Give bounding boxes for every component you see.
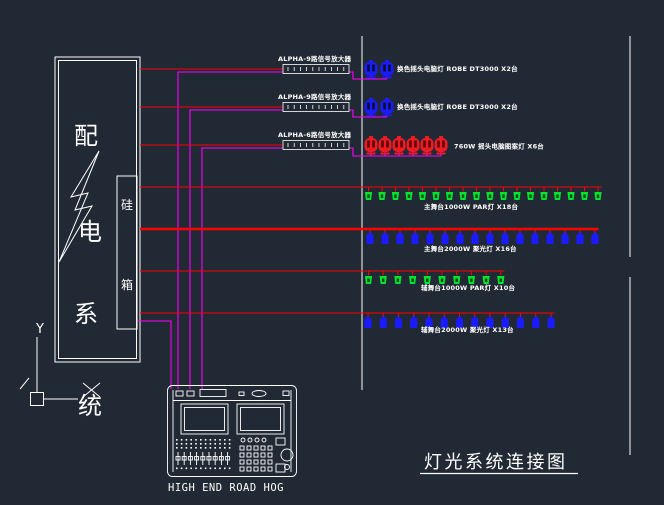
- drawing-title: 灯光系统连接图: [424, 452, 568, 473]
- signal-amplifier-box-3: [283, 141, 349, 150]
- par-can-icon: [554, 188, 561, 201]
- signal-amplifier-box-2: [283, 103, 349, 112]
- fixture-row-label-5: 主舞台2000W 聚光灯 X16台: [424, 244, 517, 253]
- lighting-console: [168, 386, 297, 477]
- spot-light-icon: [486, 230, 493, 245]
- fixture-row-label-6: 辅舞台1000W PAR灯 X10台: [421, 283, 515, 292]
- spot-light-icon: [591, 230, 598, 245]
- amplifier-label-1: ALPHA-9路信号放大器: [278, 54, 352, 63]
- spot-light-icon: [456, 230, 463, 245]
- spot-light-icon: [576, 230, 583, 245]
- amplifier-label-3: ALPHA-6路信号放大器: [278, 130, 352, 139]
- fixture-row-5: [140, 229, 599, 244]
- dmx-signal-wires: [138, 72, 441, 389]
- spot-light-icon: [561, 230, 568, 245]
- spot-light-icon: [546, 230, 553, 245]
- spot-light-icon: [411, 230, 418, 245]
- spot-light-icon: [516, 230, 523, 245]
- spot-light-icon: [441, 230, 448, 245]
- signal-amplifier-box-1: [283, 65, 349, 74]
- spot-light-icon: [380, 314, 387, 329]
- spot-light-icon: [517, 314, 524, 329]
- cabinet-char-3: 系: [74, 300, 98, 328]
- par-can-icon: [567, 188, 574, 201]
- par-can-icon: [405, 188, 412, 201]
- par-can-icon: [392, 188, 399, 201]
- par-can-icon: [432, 188, 439, 201]
- spot-light-icon: [395, 314, 402, 329]
- fixture-row-label-4: 主舞台1000W PAR灯 X18台: [424, 202, 518, 211]
- par-can-icon: [513, 188, 520, 201]
- par-can-icon: [446, 188, 453, 201]
- par-can-icon: [378, 188, 385, 201]
- spot-light-icon: [426, 230, 433, 245]
- par-can-icon: [365, 188, 372, 201]
- moving-head-icon: [365, 98, 378, 117]
- fixture-row-label-1: 换色摇头电脑灯 ROBE DT3000 X2台: [397, 64, 518, 73]
- fixture-row-6: [140, 271, 504, 284]
- par-can-icon: [394, 272, 401, 285]
- y-axis-label: Y: [35, 322, 44, 337]
- spot-light-icon: [471, 230, 478, 245]
- par-can-icon: [500, 188, 507, 201]
- console-brand-label: HIGH END ROAD HOG: [168, 482, 284, 494]
- spot-light-icon: [547, 314, 554, 329]
- spot-light-icon: [381, 230, 388, 245]
- console-screen-right: [237, 404, 284, 434]
- par-can-icon: [419, 188, 426, 201]
- fixture-rows-layer: [140, 60, 602, 328]
- par-can-icon: [409, 272, 416, 285]
- par-can-icon: [497, 272, 504, 285]
- spot-light-icon: [410, 314, 417, 329]
- moving-head-icon: [365, 60, 378, 79]
- par-can-icon: [594, 188, 601, 201]
- console-screen-left: [181, 404, 228, 434]
- fixture-row-4: [140, 187, 602, 200]
- fixture-row-label-2: 换色摇头电脑灯 ROBE DT3000 X2台: [397, 102, 518, 111]
- par-can-icon: [468, 272, 475, 285]
- moving-head-icon: [381, 60, 394, 79]
- dimmer-box-char-2: 箱: [121, 277, 133, 292]
- par-can-icon: [483, 272, 490, 285]
- par-can-icon: [486, 188, 493, 201]
- par-can-icon: [453, 272, 460, 285]
- spot-light-icon: [366, 230, 373, 245]
- moving-head-icon: [393, 136, 406, 155]
- spot-light-icon: [531, 230, 538, 245]
- console-controls: [176, 438, 285, 472]
- par-can-icon: [527, 188, 534, 201]
- moving-head-icon: [365, 136, 378, 155]
- fixture-row-label-3: 760W 摇头电脑图案灯 X6台: [454, 142, 544, 151]
- par-can-icon: [424, 272, 431, 285]
- par-can-icon: [380, 272, 387, 285]
- console-connector: [176, 391, 183, 396]
- moving-head-icon: [421, 136, 434, 155]
- spot-light-icon: [396, 230, 403, 245]
- dimmer-box-char-1: 硅: [121, 198, 133, 212]
- par-can-icon: [473, 188, 480, 201]
- moving-head-icon: [381, 98, 394, 117]
- par-can-icon: [459, 188, 466, 201]
- spot-light-icon: [532, 314, 539, 329]
- moving-head-icon: [407, 136, 420, 155]
- moving-head-icon: [435, 136, 448, 155]
- spot-light-icon: [364, 314, 371, 329]
- cabinet-char-1: 配: [74, 122, 98, 150]
- moving-head-icon: [379, 136, 392, 155]
- par-can-icon: [365, 272, 372, 285]
- par-can-icon: [540, 188, 547, 201]
- lighting-diagram: 配 电 系 统 硅 箱 Y ALPHA-9路信号放大器 ALPHA-9路信号放大…: [0, 0, 664, 505]
- cad-drawing-canvas[interactable]: 配 电 系 统 硅 箱 Y ALPHA-9路信号放大器 ALPHA-9路信号放大…: [0, 0, 664, 505]
- fixture-row-label-7: 辅舞台2000W 聚光灯 X13台: [421, 325, 514, 334]
- par-can-icon: [438, 272, 445, 285]
- amplifier-label-2: ALPHA-9路信号放大器: [278, 92, 352, 101]
- cabinet-char-2: 电: [78, 218, 102, 246]
- spot-light-icon: [501, 230, 508, 245]
- par-can-icon: [581, 188, 588, 201]
